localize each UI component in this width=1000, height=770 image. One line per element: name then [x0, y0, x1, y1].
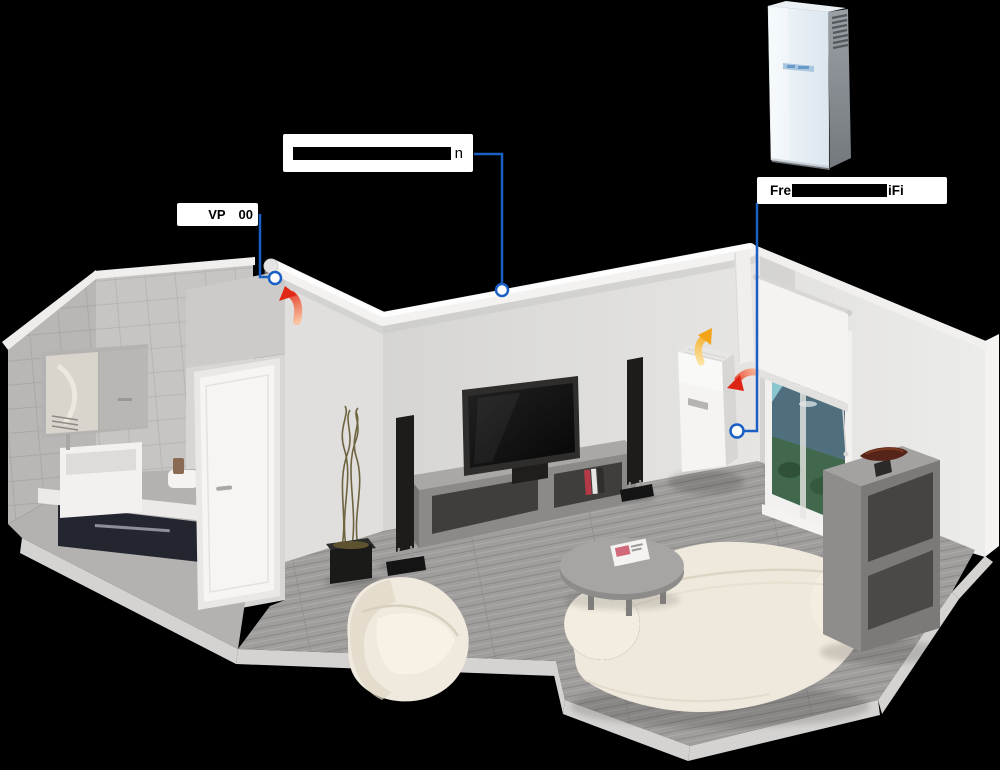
callout-marker-duct-vent	[269, 272, 281, 284]
callout-marker-ventilation-unit	[731, 425, 744, 438]
books	[584, 468, 605, 495]
mirror-cabinet	[42, 344, 148, 438]
ventilation-room-illustration: VP 00 n Fre iFi	[0, 0, 1000, 770]
faucet	[66, 434, 70, 450]
redacted-text	[792, 184, 887, 197]
label-duct-vent-obscured	[226, 214, 239, 215]
label-unit-suffix: iFi	[888, 183, 904, 198]
label-ventilation-unit: Fre iFi	[757, 177, 947, 204]
label-ceiling-duct-suffix: n	[455, 145, 463, 162]
label-ceiling-duct: n	[283, 134, 473, 172]
callout-line-ceiling-duct	[474, 154, 502, 284]
interior-door	[194, 358, 280, 610]
label-duct-vent-suffix: 00	[239, 207, 253, 222]
label-duct-vent: VP 00	[177, 203, 258, 226]
cup	[173, 458, 184, 474]
open-bookshelf	[820, 446, 944, 664]
round-coffee-table	[560, 538, 684, 616]
label-unit-prefix: Fre	[770, 183, 791, 198]
isometric-room-render	[0, 0, 1000, 770]
product-outdoor-view	[768, 1, 851, 170]
right-wall-edge	[985, 334, 999, 557]
redacted-text	[293, 147, 451, 160]
label-duct-vent-prefix: VP	[208, 207, 225, 222]
callout-marker-ceiling-duct	[496, 284, 508, 296]
